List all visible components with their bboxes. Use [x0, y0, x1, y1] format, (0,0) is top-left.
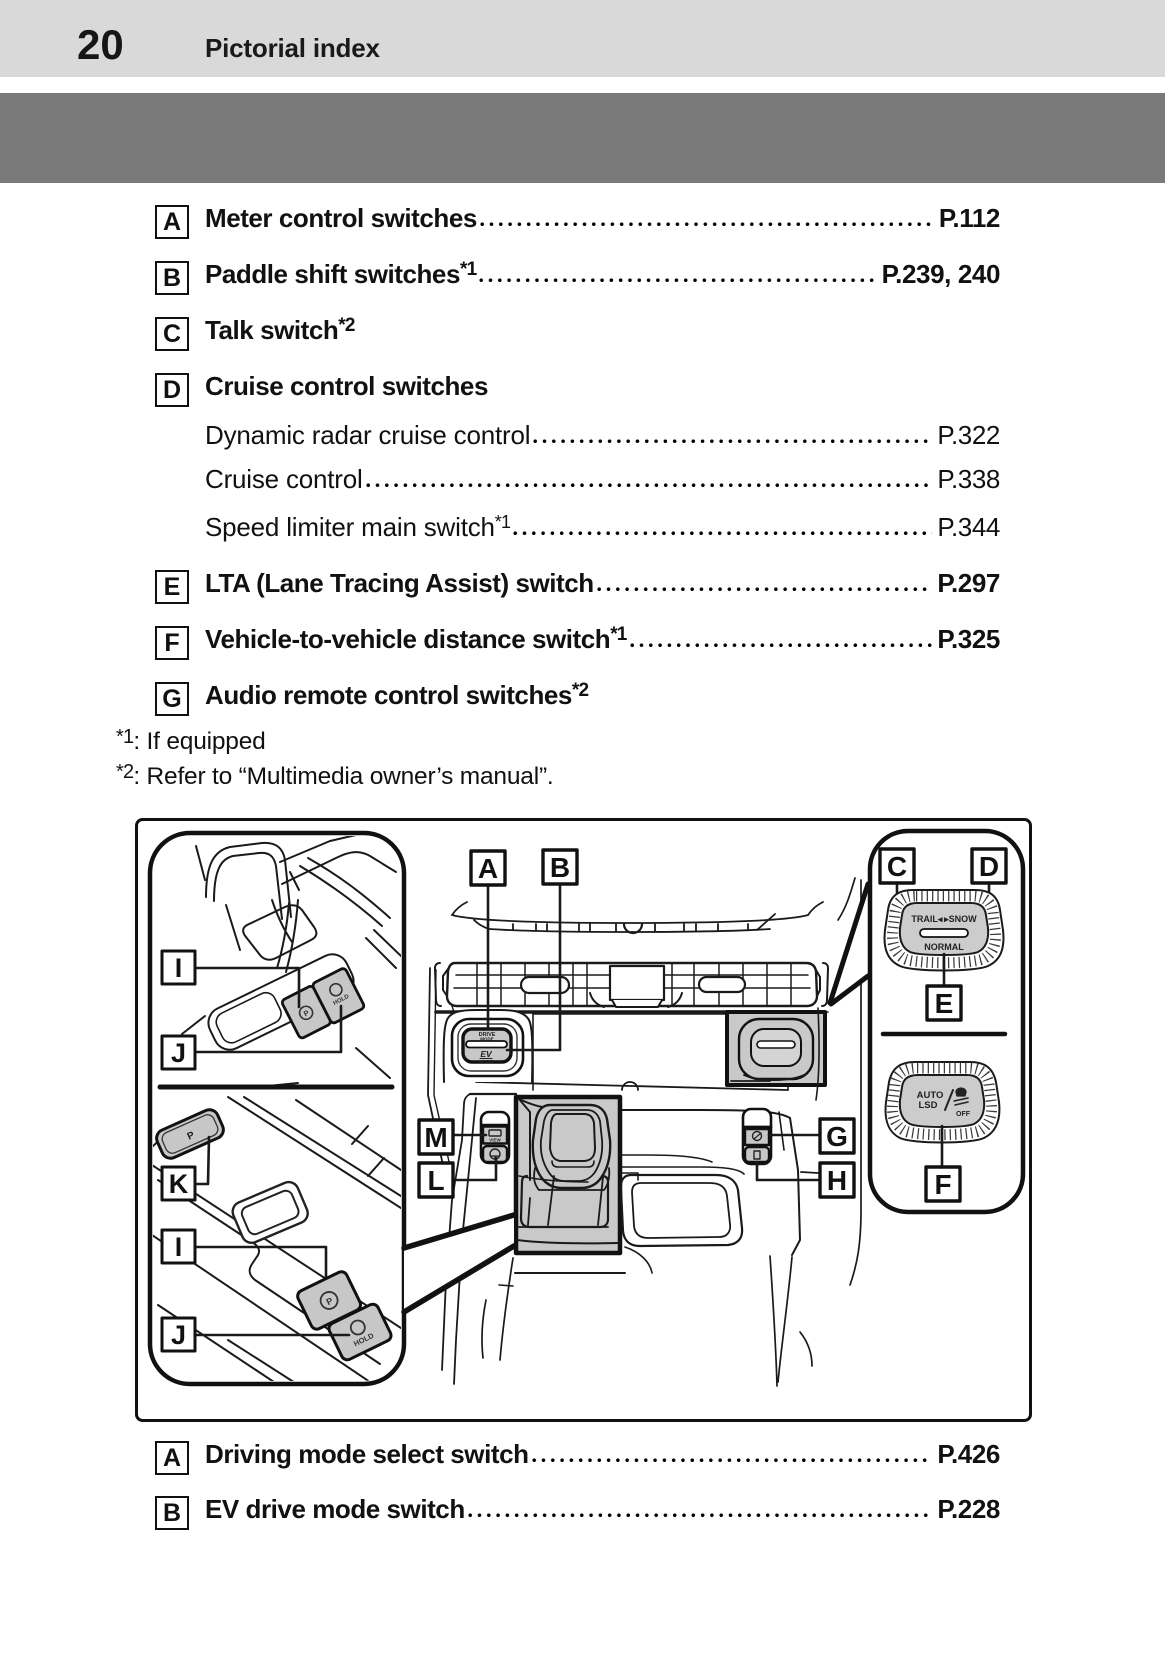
svg-text:J: J: [171, 1038, 186, 1068]
svg-text:B: B: [550, 852, 570, 883]
svg-text:I: I: [175, 953, 183, 983]
svg-text:I: I: [175, 1232, 183, 1262]
svg-text:J: J: [171, 1320, 186, 1350]
svg-text:E: E: [935, 988, 954, 1019]
svg-text:D: D: [979, 851, 999, 882]
svg-text:F: F: [934, 1169, 951, 1200]
svg-text:K: K: [169, 1169, 189, 1199]
svg-text:TRAIL◂ ▸SNOW: TRAIL◂ ▸SNOW: [911, 914, 977, 924]
svg-text:H: H: [827, 1165, 847, 1196]
svg-text:C: C: [887, 851, 907, 882]
svg-text:MODE: MODE: [479, 1059, 493, 1064]
svg-text:VIEW: VIEW: [489, 1138, 501, 1143]
svg-text:MODE: MODE: [480, 1037, 494, 1042]
svg-text:A: A: [478, 853, 498, 884]
svg-text:EV: EV: [480, 1049, 493, 1059]
svg-text:G: G: [826, 1121, 848, 1152]
svg-text:NORMAL: NORMAL: [924, 942, 964, 952]
svg-text:L: L: [427, 1165, 444, 1196]
svg-text:M: M: [424, 1122, 447, 1153]
svg-text:LSD: LSD: [919, 1100, 938, 1111]
svg-text:OFF: OFF: [956, 1111, 971, 1118]
